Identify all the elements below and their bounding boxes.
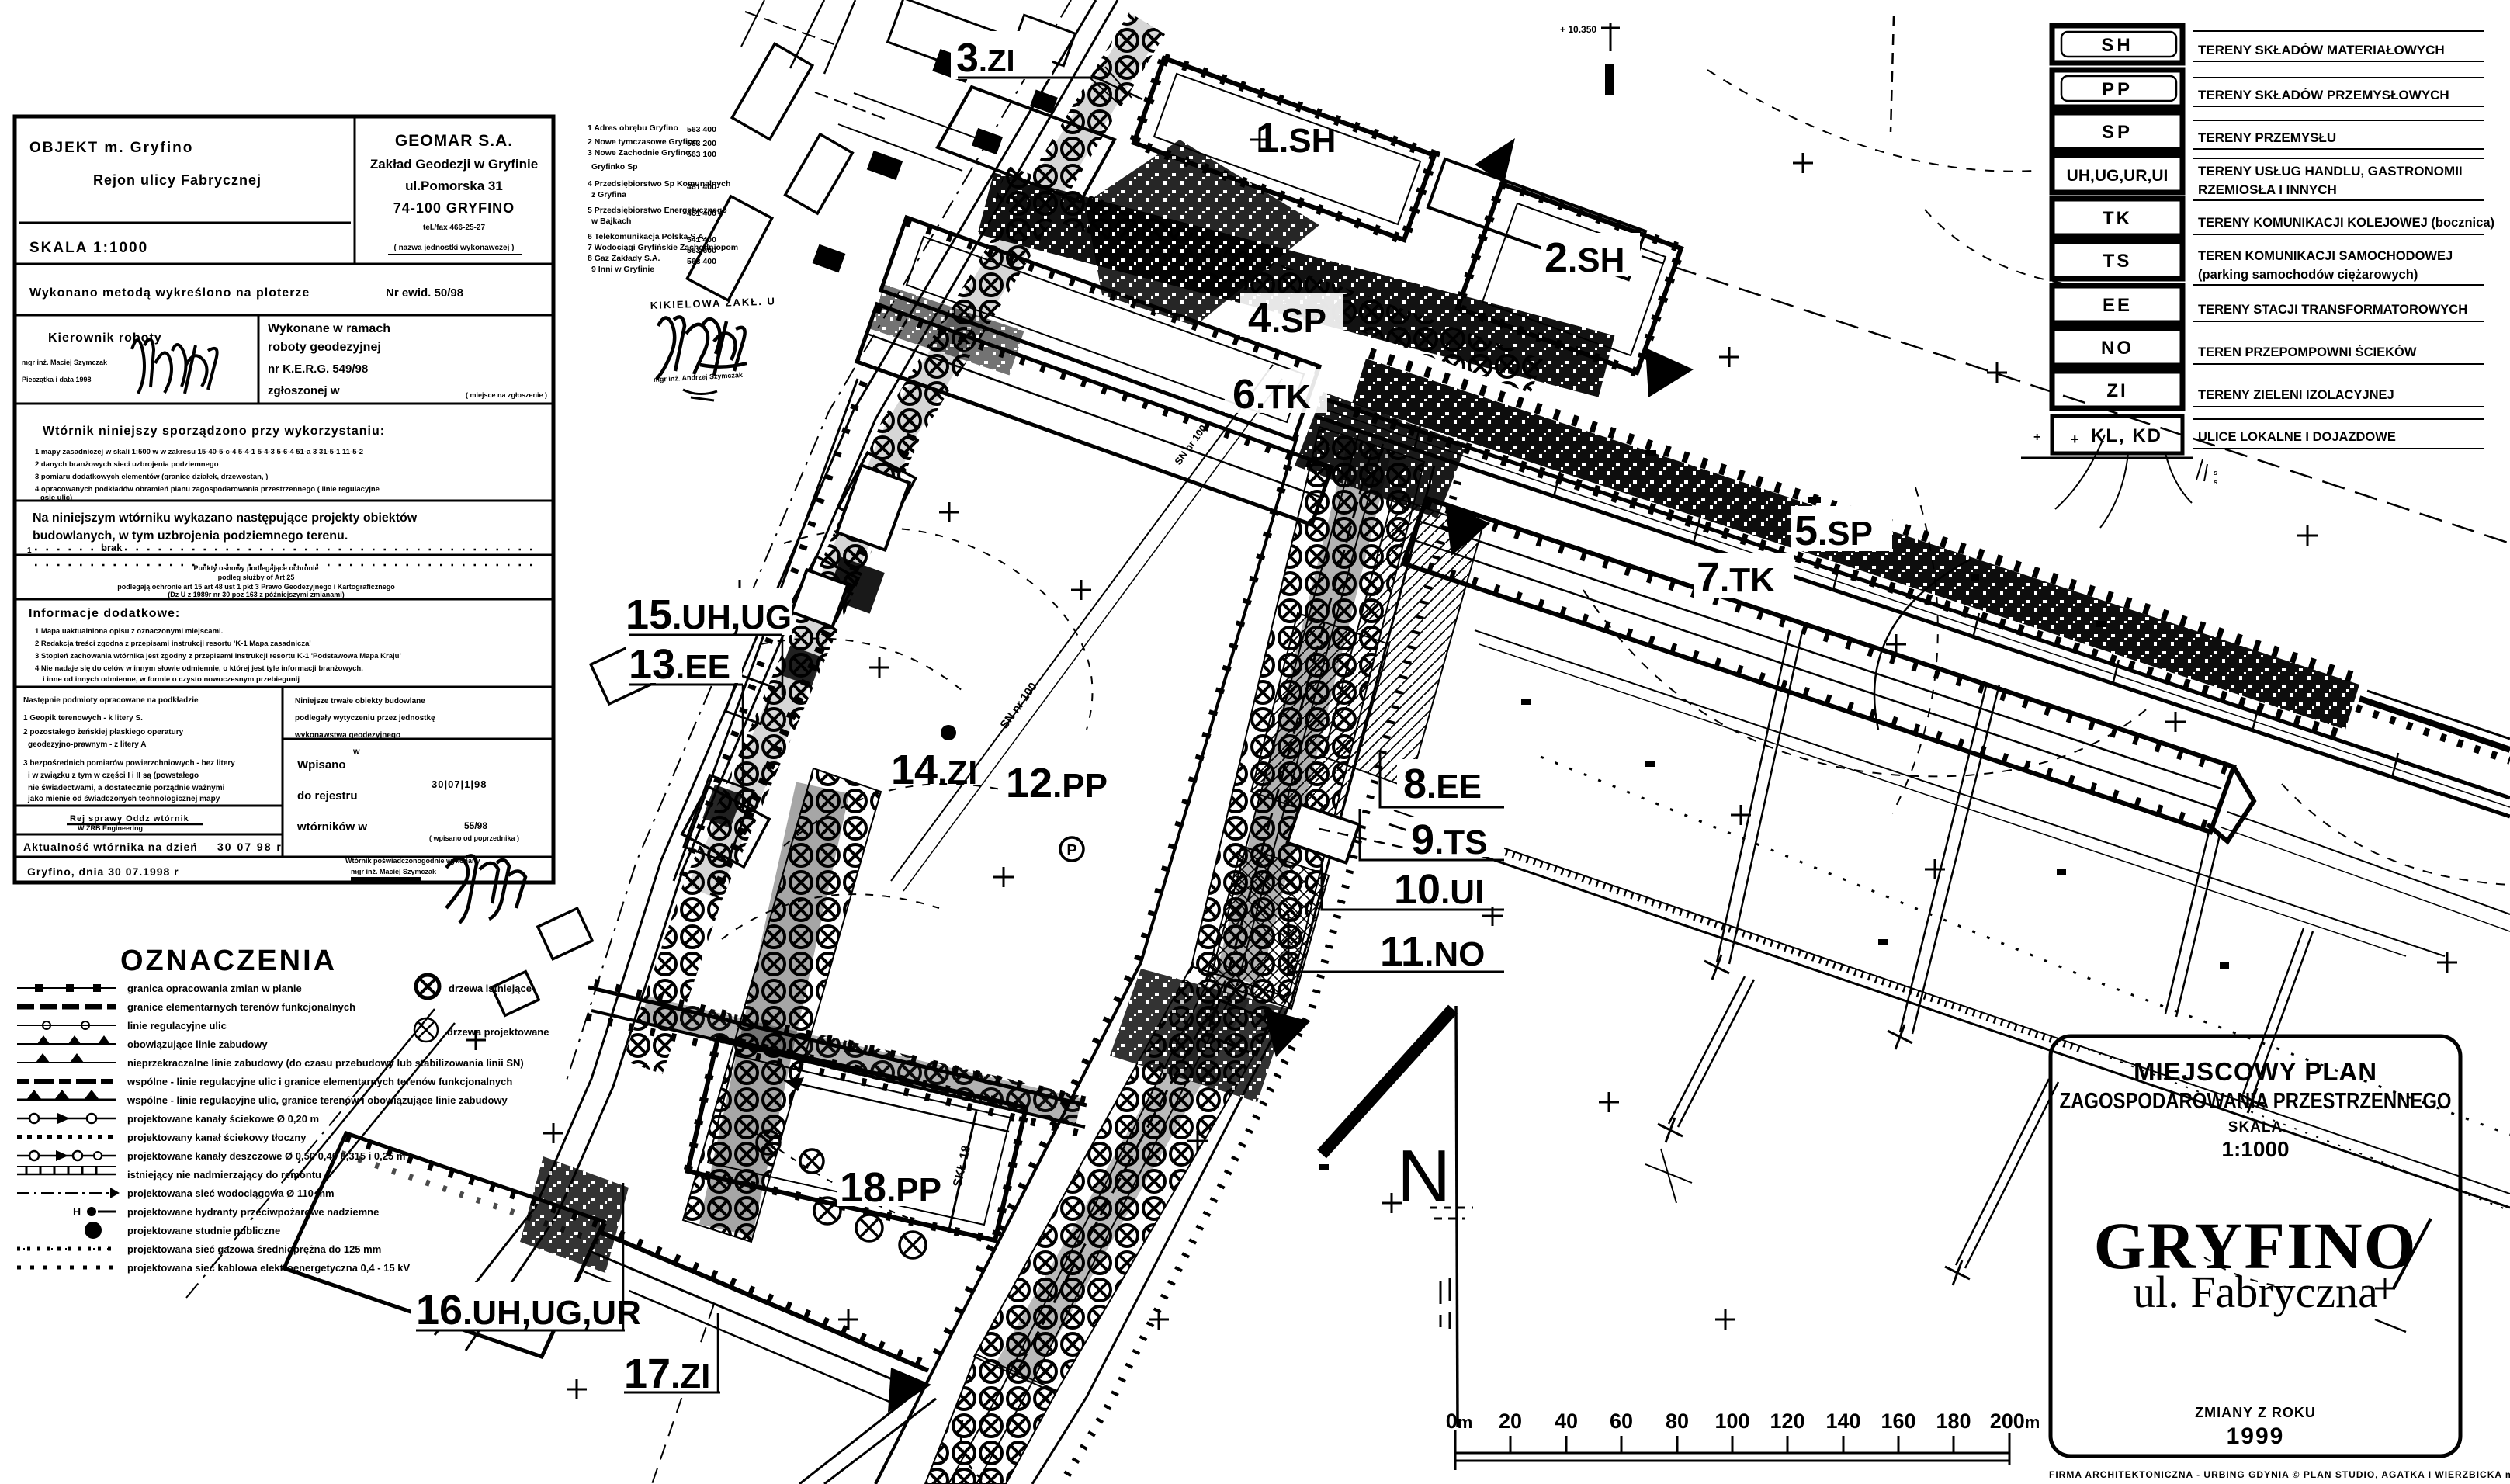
svg-text:istniejący nie nadmierzający: istniejący nie nadmierzający do remontu xyxy=(127,1169,321,1181)
svg-text:1.SH: 1.SH xyxy=(1256,115,1336,161)
svg-text:100: 100 xyxy=(1714,1409,1749,1433)
svg-text:MIEJSCOWY PLAN: MIEJSCOWY PLAN xyxy=(2134,1057,2377,1086)
svg-text:(Dz U z 1989r nr 30 poz 16: (Dz U z 1989r nr 30 poz 163 z późniejszy… xyxy=(168,591,345,598)
svg-text:461 400: 461 400 xyxy=(687,182,716,192)
svg-text:nr K.E.R.G. 549/98: nr K.E.R.G. 549/98 xyxy=(268,362,368,376)
svg-text:Nr ewid. 50/98: Nr ewid. 50/98 xyxy=(386,286,463,300)
svg-text:( wpisano od poprzednika ): ( wpisano od poprzednika ) xyxy=(429,834,519,842)
svg-text:1 mapy zasadniczej w skali 1: 1 mapy zasadniczej w skali 1:500 w w zak… xyxy=(35,448,363,456)
svg-text:1999: 1999 xyxy=(2227,1423,2285,1449)
svg-text:projektowany kanał ściekowy: projektowany kanał ściekowy tłoczny xyxy=(127,1132,307,1143)
svg-text:9.TS: 9.TS xyxy=(1411,817,1488,863)
svg-text:160: 160 xyxy=(1881,1409,1915,1433)
svg-text:W ZRB Engineering: W ZRB Engineering xyxy=(78,824,143,832)
svg-text:s: s xyxy=(2214,478,2217,486)
svg-text:3 Nowe Zachodnie Gryfino: 3 Nowe Zachodnie Gryfino xyxy=(588,148,690,158)
svg-text:Informacje dodatkowe:: Informacje dodatkowe: xyxy=(29,607,180,620)
svg-text:OZNACZENIA: OZNACZENIA xyxy=(120,945,337,977)
svg-text:GEOMAR S.A.: GEOMAR S.A. xyxy=(395,132,513,150)
svg-text:563 100: 563 100 xyxy=(687,150,716,159)
svg-text:Następnie podmioty opracowan: Następnie podmioty opracowane na podkład… xyxy=(23,696,199,705)
svg-text:wtórników w: wtórników w xyxy=(296,820,367,834)
svg-text:30 07 98 r: 30 07 98 r xyxy=(217,841,283,853)
svg-text:mgr inż. Maciej Szymczak: mgr inż. Maciej Szymczak xyxy=(351,868,437,875)
svg-text:Na niniejszym wtórniku wyka: Na niniejszym wtórniku wykazano następuj… xyxy=(33,511,418,525)
svg-text:Punkty osnowy podlegające o: Punkty osnowy podlegające ochronie xyxy=(193,564,318,572)
svg-text:18.PP: 18.PP xyxy=(840,1164,941,1211)
svg-text:zgłoszonej w: zgłoszonej w xyxy=(268,384,340,397)
svg-text:podlegały wytyczeniu przez: podlegały wytyczeniu przez jednostkę xyxy=(295,714,435,723)
svg-text:2 danych branżowych sieci: 2 danych branżowych sieci uzbrojenia pod… xyxy=(35,460,219,469)
svg-text:20: 20 xyxy=(1499,1409,1522,1433)
svg-text:140: 140 xyxy=(1825,1409,1860,1433)
svg-text:granica opracowania zmian w: granica opracowania zmian w planie xyxy=(127,983,302,994)
svg-text:budowlanych, w tym uzbrojen: budowlanych, w tym uzbrojenia podziemneg… xyxy=(33,529,348,543)
svg-text:(parking samochodów ciężarow: (parking samochodów ciężarowych) xyxy=(2198,268,2418,282)
svg-text:obowiązujące linie zabudowy: obowiązujące linie zabudowy xyxy=(127,1038,268,1050)
svg-text:ZMIANY Z ROKU: ZMIANY Z ROKU xyxy=(2195,1405,2316,1420)
svg-text:Wykonano metodą wykreślono: Wykonano metodą wykreślono na ploterze xyxy=(29,286,310,300)
svg-text:2 Nowe tymczasowe Gryfino: 2 Nowe tymczasowe Gryfino xyxy=(588,137,698,147)
svg-text:180: 180 xyxy=(1936,1409,1971,1433)
svg-text:1:1000: 1:1000 xyxy=(2221,1137,2289,1161)
svg-text:+: + xyxy=(2033,431,2040,444)
svg-text:projektowane hydranty przeci: projektowane hydranty przeciwpożarowe na… xyxy=(127,1206,379,1218)
svg-text:5.SP: 5.SP xyxy=(1794,508,1873,554)
svg-text:TERENY SKŁADÓW MATERIAŁOWYCH: TERENY SKŁADÓW MATERIAŁOWYCH xyxy=(2198,43,2445,57)
svg-text:4 Nie nadaje się do celó: 4 Nie nadaje się do celów w innym słowie… xyxy=(35,664,363,673)
svg-text:Pieczątka i data 1998: Pieczątka i data 1998 xyxy=(22,376,92,383)
svg-text:3 Stopień zachowania wtórn: 3 Stopień zachowania wtórnika jest zgodn… xyxy=(35,652,401,661)
svg-text:projektowana sieć gazowa śr: projektowana sieć gazowa średnioprężna d… xyxy=(127,1243,381,1255)
svg-text:15.UH,UG: 15.UH,UG xyxy=(626,591,792,638)
svg-text:TEREN KOMUNIKACJI SAMOCHODOW: TEREN KOMUNIKACJI SAMOCHODOWEJ xyxy=(2198,249,2453,263)
svg-text:SH: SH xyxy=(2101,35,2133,56)
svg-text:TERENY ZIELENI IZOLACYJNEJ: TERENY ZIELENI IZOLACYJNEJ xyxy=(2198,388,2394,402)
svg-text:ul. Fabryczna: ul. Fabryczna xyxy=(2133,1267,2378,1317)
svg-text:55/98: 55/98 xyxy=(464,820,487,831)
svg-text:Wpisano: Wpisano xyxy=(297,758,346,771)
svg-text:projektowane kanały deszczow: projektowane kanały deszczowe Ø 0,50 0,4… xyxy=(127,1150,405,1162)
svg-text:Niniejsze trwałe obiekty bu: Niniejsze trwałe obiekty budowlane xyxy=(295,697,425,706)
svg-text:do rejestru: do rejestru xyxy=(297,789,358,803)
svg-text:200m: 200m xyxy=(1990,1409,2040,1433)
svg-text:461 400: 461 400 xyxy=(687,209,716,218)
svg-text:projektowane kanały ściekowe: projektowane kanały ściekowe Ø 0,20 m xyxy=(127,1113,319,1125)
svg-text:0m: 0m xyxy=(1446,1409,1473,1433)
svg-text:( miejsce na zgłoszenie ): ( miejsce na zgłoszenie ) xyxy=(466,391,547,399)
svg-text:6.TK: 6.TK xyxy=(1232,371,1311,418)
svg-text:( nazwa jednostki wykonawczej: ( nazwa jednostki wykonawczej ) xyxy=(393,244,514,252)
svg-text:projektowane studnie publicz: projektowane studnie publiczne xyxy=(127,1225,280,1236)
svg-text:+: + xyxy=(2071,432,2079,447)
svg-text:wspólne - linie regulacyj: wspólne - linie regulacyjne ulic, granic… xyxy=(127,1094,508,1106)
svg-text:wspólne - linie regulacyj: wspólne - linie regulacyjne ulic i grani… xyxy=(127,1076,512,1087)
svg-text:H: H xyxy=(73,1205,81,1218)
svg-text:TS: TS xyxy=(2103,251,2132,272)
svg-text:+ 10.350: + 10.350 xyxy=(1560,24,1596,35)
svg-text:nie świadectwami, a dostate: nie świadectwami, a dostatecznie porządn… xyxy=(28,784,225,792)
svg-text:563 400: 563 400 xyxy=(687,257,716,266)
svg-text:74-100 GRYFINO: 74-100 GRYFINO xyxy=(393,200,515,216)
svg-text:z Gryfina: z Gryfina xyxy=(591,190,626,199)
svg-text:80: 80 xyxy=(1666,1409,1689,1433)
svg-text:jako mienie od świadczonych: jako mienie od świadczonych technologicz… xyxy=(27,795,220,803)
svg-text:60: 60 xyxy=(1610,1409,1633,1433)
svg-text:W: W xyxy=(353,748,360,756)
svg-text:Rej sprawy Oddz wtórnik: Rej sprawy Oddz wtórnik xyxy=(70,814,189,823)
svg-text:14.ZI: 14.ZI xyxy=(891,747,977,793)
svg-text:brak: brak xyxy=(101,542,123,553)
svg-text:linie regulacyjne ulic: linie regulacyjne ulic xyxy=(127,1020,227,1032)
svg-text:wykonawstwa geodezyjnego: wykonawstwa geodezyjnego xyxy=(294,731,400,740)
svg-text:1 Mapa uaktualniona opisu: 1 Mapa uaktualniona opisu z oznaczonymi … xyxy=(35,627,223,636)
svg-text:projektowana sieć kablowa e: projektowana sieć kablowa elektroenerget… xyxy=(127,1262,410,1274)
svg-text:TERENY SKŁADÓW PRZEMYSŁOWYCH: TERENY SKŁADÓW PRZEMYSŁOWYCH xyxy=(2198,88,2449,102)
svg-text:Aktualność wtórnika na dzie: Aktualność wtórnika na dzień xyxy=(23,841,198,853)
svg-text:osie ulic): osie ulic) xyxy=(40,494,72,502)
svg-text:PP: PP xyxy=(2102,79,2133,100)
svg-text:8.EE: 8.EE xyxy=(1403,761,1482,807)
svg-text:Gryfinko Sp: Gryfinko Sp xyxy=(591,162,638,172)
svg-text:1: 1 xyxy=(27,546,32,555)
svg-text:2 pozostałego żeńskiej płask: 2 pozostałego żeńskiej płaskiego operatu… xyxy=(23,728,184,737)
svg-text:1 Adres obrębu Gryfino: 1 Adres obrębu Gryfino xyxy=(588,123,678,133)
svg-text:drzewa projektowane: drzewa projektowane xyxy=(447,1026,549,1038)
svg-text:nieprzekraczalne linie zabud: nieprzekraczalne linie zabudowy (do czas… xyxy=(127,1057,524,1069)
svg-text:TEREN PRZEPOMPOWNI ŚCIEKÓW: TEREN PRZEPOMPOWNI ŚCIEKÓW xyxy=(2198,345,2417,359)
svg-text:120: 120 xyxy=(1770,1409,1804,1433)
svg-text:N: N xyxy=(1397,1135,1451,1218)
svg-text:s: s xyxy=(2214,469,2217,477)
svg-text:ul.Pomorska 31: ul.Pomorska 31 xyxy=(405,179,503,193)
svg-text:2 Redakcja treści zgodna: 2 Redakcja treści zgodna z przepisami in… xyxy=(35,640,311,648)
svg-text:8 Gaz Zakłady S.A.: 8 Gaz Zakłady S.A. xyxy=(588,254,660,263)
svg-text:roboty geodezyjnej: roboty geodezyjnej xyxy=(268,341,381,354)
svg-text:Gryfino, dnia 30 07.1998 r: Gryfino, dnia 30 07.1998 r xyxy=(27,865,179,878)
svg-text:563 400: 563 400 xyxy=(687,125,716,134)
svg-text:17.ZI: 17.ZI xyxy=(624,1351,710,1397)
svg-text:podlegają ochronie art 15 ar: podlegają ochronie art 15 art 48 ust 1 p… xyxy=(117,583,395,591)
svg-text:TERENY KOMUNIKACJI KOLEJOWEJ: TERENY KOMUNIKACJI KOLEJOWEJ (bocznica) xyxy=(2198,216,2494,230)
svg-text:3 bezpośrednich pomiarów pow: 3 bezpośrednich pomiarów powierzchniowyc… xyxy=(23,759,235,768)
svg-text:ULICE LOKALNE I DOJAZDOWE: ULICE LOKALNE I DOJAZDOWE xyxy=(2198,430,2396,444)
svg-text:TERENY USŁUG HANDLU, GASTRO: TERENY USŁUG HANDLU, GASTRONOMII xyxy=(2198,164,2463,179)
svg-text:12.PP: 12.PP xyxy=(1006,760,1108,806)
svg-text:2.SH: 2.SH xyxy=(1544,234,1624,281)
svg-text:podleg służby of Art 25: podleg służby of Art 25 xyxy=(218,574,295,581)
svg-text:NO: NO xyxy=(2101,338,2134,359)
svg-text:TERENY STACJI TRANSFORMATORO: TERENY STACJI TRANSFORMATOROWYCH xyxy=(2198,303,2467,317)
svg-text:3 pomiaru dodatkowych eleme: 3 pomiaru dodatkowych elementów (granice… xyxy=(35,473,268,481)
svg-text:Zakład Geodezji w Gryfinie: Zakład Geodezji w Gryfinie xyxy=(370,157,538,172)
svg-text:Wtórnik niniejszy sporządzon: Wtórnik niniejszy sporządzono przy wykor… xyxy=(43,425,385,438)
svg-text:OBJEKT m. Gryfino: OBJEKT m. Gryfino xyxy=(29,140,193,156)
svg-text:4.SP: 4.SP xyxy=(1248,295,1326,342)
svg-text:SKALA: SKALA xyxy=(2228,1119,2283,1136)
svg-text:EE: EE xyxy=(2103,295,2132,316)
svg-text:w Bajkach: w Bajkach xyxy=(591,217,631,226)
svg-text:i inne od innych odmienne,: i inne od innych odmienne, w formie o cz… xyxy=(43,675,300,684)
svg-text:ZAGOSPODAROWANIA PRZESTRZENNEG: ZAGOSPODAROWANIA PRZESTRZENNEGO xyxy=(2060,1089,2452,1114)
svg-text:UH,UG,UR,UI: UH,UG,UR,UI xyxy=(2067,167,2169,185)
svg-text:TERENY PRZEMYSŁU: TERENY PRZEMYSŁU xyxy=(2198,130,2336,145)
svg-text:Rejon ulicy Fabrycznej: Rejon ulicy Fabrycznej xyxy=(93,172,262,188)
svg-text:P: P xyxy=(1066,842,1076,859)
svg-text:TK: TK xyxy=(2103,208,2132,229)
svg-text:RZEMIOSŁA I INNYCH: RZEMIOSŁA I INNYCH xyxy=(2198,182,2337,197)
svg-text:ZI: ZI xyxy=(2106,380,2127,401)
svg-text:Wykonane w ramach: Wykonane w ramach xyxy=(268,322,390,335)
svg-text:geodezyjno-prawnym - z lite: geodezyjno-prawnym - z litery A xyxy=(28,740,146,749)
svg-text:10.UI: 10.UI xyxy=(1394,866,1484,913)
svg-text:9 Inni w Gryfinie: 9 Inni w Gryfinie xyxy=(591,265,654,274)
svg-text:40: 40 xyxy=(1555,1409,1578,1433)
svg-text:16.UH,UG,UR: 16.UH,UG,UR xyxy=(416,1287,641,1333)
svg-text:SKALA 1:1000: SKALA 1:1000 xyxy=(29,240,148,256)
svg-text:1 Geopik terenowych - k li: 1 Geopik terenowych - k litery S. xyxy=(23,714,143,723)
svg-text:drzewa istniejące: drzewa istniejące xyxy=(449,983,532,994)
svg-text:tel./fax 466-25-27: tel./fax 466-25-27 xyxy=(423,224,485,232)
svg-text:granice elementarnych terenó: granice elementarnych terenów funkcjonal… xyxy=(127,1001,355,1013)
svg-text:13.EE: 13.EE xyxy=(629,641,730,688)
svg-text:mgr inż. Maciej Szymczak: mgr inż. Maciej Szymczak xyxy=(22,359,108,366)
svg-text:i w związku z tym w częśc: i w związku z tym w części I i II są (po… xyxy=(28,771,199,780)
svg-text:30|07|1|98: 30|07|1|98 xyxy=(432,778,487,790)
svg-text:563 200: 563 200 xyxy=(687,139,716,148)
svg-text:4 opracowanych podkładów ob: 4 opracowanych podkładów obramień planu … xyxy=(35,485,380,494)
svg-text:SP: SP xyxy=(2102,122,2133,143)
svg-text:FIRMA ARCHITEKTONICZNA - URBIN: FIRMA ARCHITEKTONICZNA - URBING GDYNIA ©… xyxy=(2049,1469,2510,1480)
svg-text:projektowana sieć wodociągow: projektowana sieć wodociągowa Ø 110 mm xyxy=(127,1188,335,1199)
svg-text:541 400: 541 400 xyxy=(687,235,716,244)
svg-text:11.NO: 11.NO xyxy=(1380,928,1485,975)
svg-text:7.TK: 7.TK xyxy=(1697,554,1775,601)
